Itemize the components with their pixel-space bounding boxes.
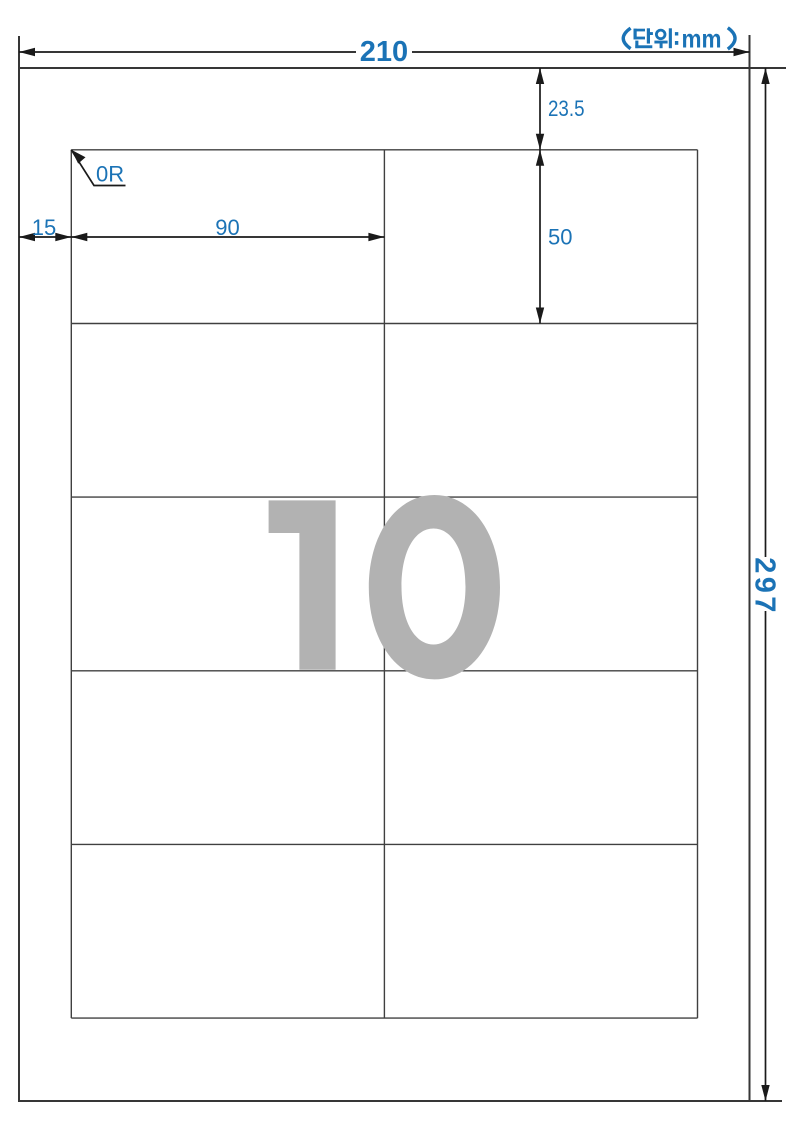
svg-text:90: 90 xyxy=(215,215,239,240)
svg-text:mm: mm xyxy=(682,24,722,54)
svg-text:210: 210 xyxy=(360,36,408,68)
svg-text:15: 15 xyxy=(32,215,56,240)
svg-text:297: 297 xyxy=(749,557,781,616)
svg-text:23.5: 23.5 xyxy=(548,96,585,121)
svg-text:0R: 0R xyxy=(96,162,124,187)
svg-text:50: 50 xyxy=(548,225,572,250)
